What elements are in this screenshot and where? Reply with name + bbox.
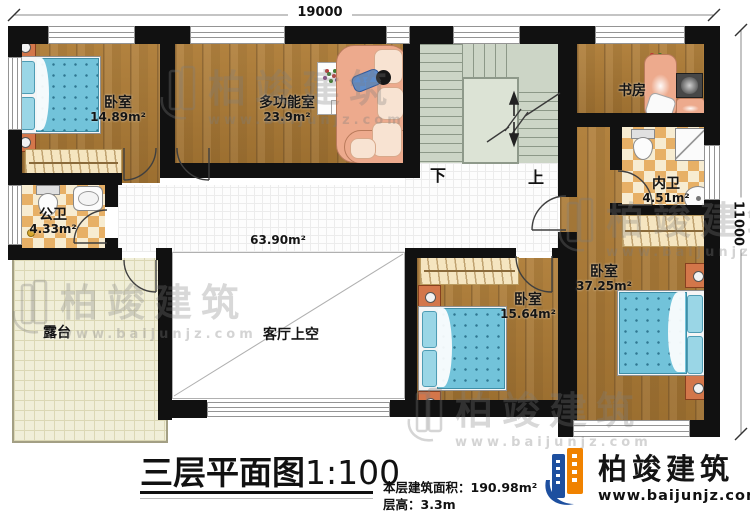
wall-segment	[403, 26, 420, 178]
floor-plan: 卧室 14.89m² 多功能室 23.9m² 书房 内卫 4.51m² 公卫 4…	[0, 0, 750, 511]
bed-sheet-fold	[668, 292, 685, 372]
company-name: 柏竣建筑	[598, 446, 750, 488]
living-void-floor	[172, 252, 405, 400]
wardrobe	[420, 257, 519, 285]
title-underline-thick	[140, 491, 373, 494]
staircase	[420, 44, 558, 163]
wall-segment	[405, 248, 516, 258]
window	[573, 420, 690, 437]
window	[386, 26, 410, 44]
company-website: www.baijunjz.com	[598, 488, 750, 504]
pillow	[422, 311, 437, 348]
pillow	[20, 61, 35, 94]
window	[48, 26, 135, 44]
nightstand	[418, 285, 441, 308]
window	[190, 26, 285, 44]
wall-segment	[558, 232, 577, 420]
wall-segment	[158, 248, 172, 420]
sofa-cushion	[377, 87, 404, 120]
label-bedroom-left: 卧室 14.89m²	[58, 95, 178, 125]
label-bedroom-right: 卧室 37.25m²	[544, 264, 664, 294]
window	[207, 402, 390, 417]
room-name: 书房	[577, 83, 687, 99]
room-terrace-floor	[12, 258, 168, 443]
wall-segment	[8, 248, 122, 260]
label-inner-bath: 内卫 4.51m²	[621, 176, 711, 206]
wall-segment	[558, 26, 577, 197]
room-name: 客厅上空	[221, 327, 361, 343]
drawing-title: 三层平面图1:100	[140, 446, 400, 494]
room-area: 15.64m²	[468, 308, 588, 322]
room-name: 卧室	[58, 95, 178, 111]
wall-segment	[405, 250, 417, 402]
label-corridor-area: 63.90m²	[218, 234, 338, 248]
label-bedroom-mid: 卧室 15.64m²	[468, 292, 588, 322]
title-underline-thin	[140, 498, 373, 499]
pillow	[422, 350, 437, 387]
person-head	[376, 70, 391, 85]
room-name: 卧室	[544, 264, 664, 280]
dimension-right: 11000	[731, 198, 746, 250]
room-area: 4.33m²	[8, 223, 98, 237]
room-name: 公卫	[8, 207, 98, 223]
dimension-top: 19000	[288, 5, 352, 20]
pillow	[687, 336, 703, 374]
pillow	[687, 295, 703, 333]
room-area: 63.90m²	[218, 234, 338, 248]
room-area: 14.89m²	[58, 111, 178, 125]
flower-vase-icon	[327, 72, 331, 76]
wall-segment	[610, 127, 622, 170]
room-area: 37.25m²	[544, 280, 664, 294]
sofa-cushion	[350, 138, 376, 159]
stair-steps-left	[420, 44, 462, 163]
stairs-up-label: 上	[528, 164, 544, 188]
label-public-bath: 公卫 4.33m²	[8, 207, 98, 237]
label-multi-room: 多功能室 23.9m²	[227, 95, 347, 125]
company-logo: 柏竣建筑 www.baijunjz.com	[538, 446, 750, 508]
room-name: 卧室	[468, 292, 588, 308]
floor-height-info: 层高：3.3m	[383, 494, 456, 513]
room-name: 内卫	[621, 176, 711, 192]
wardrobe	[25, 149, 122, 176]
company-logo-icon	[538, 446, 590, 508]
wall-segment	[390, 400, 558, 417]
shower-icon	[675, 128, 706, 161]
wall-segment	[158, 400, 207, 418]
room-name: 多功能室	[227, 95, 347, 111]
wall-segment	[558, 113, 704, 127]
sofa-cushion	[372, 122, 402, 157]
label-study: 书房	[577, 83, 687, 99]
stairs-down-label: 下	[430, 162, 446, 186]
wall-segment	[160, 163, 420, 178]
wall-segment	[704, 26, 720, 437]
room-name: 露台	[12, 325, 102, 341]
wall-segment	[105, 183, 118, 207]
pillow	[20, 97, 35, 130]
wall-segment	[610, 205, 704, 215]
stair-steps-top	[462, 44, 515, 77]
room-area: 23.9m²	[227, 111, 347, 125]
window	[595, 26, 685, 44]
window	[453, 26, 520, 44]
label-living-void: 客厅上空	[221, 327, 361, 343]
title-text: 三层平面图	[140, 453, 305, 492]
wardrobe	[622, 215, 706, 247]
window	[8, 57, 22, 130]
label-terrace: 露台	[12, 325, 102, 341]
stair-landing	[462, 77, 519, 164]
room-area: 4.51m²	[621, 192, 711, 206]
stair-steps-right	[515, 92, 558, 163]
